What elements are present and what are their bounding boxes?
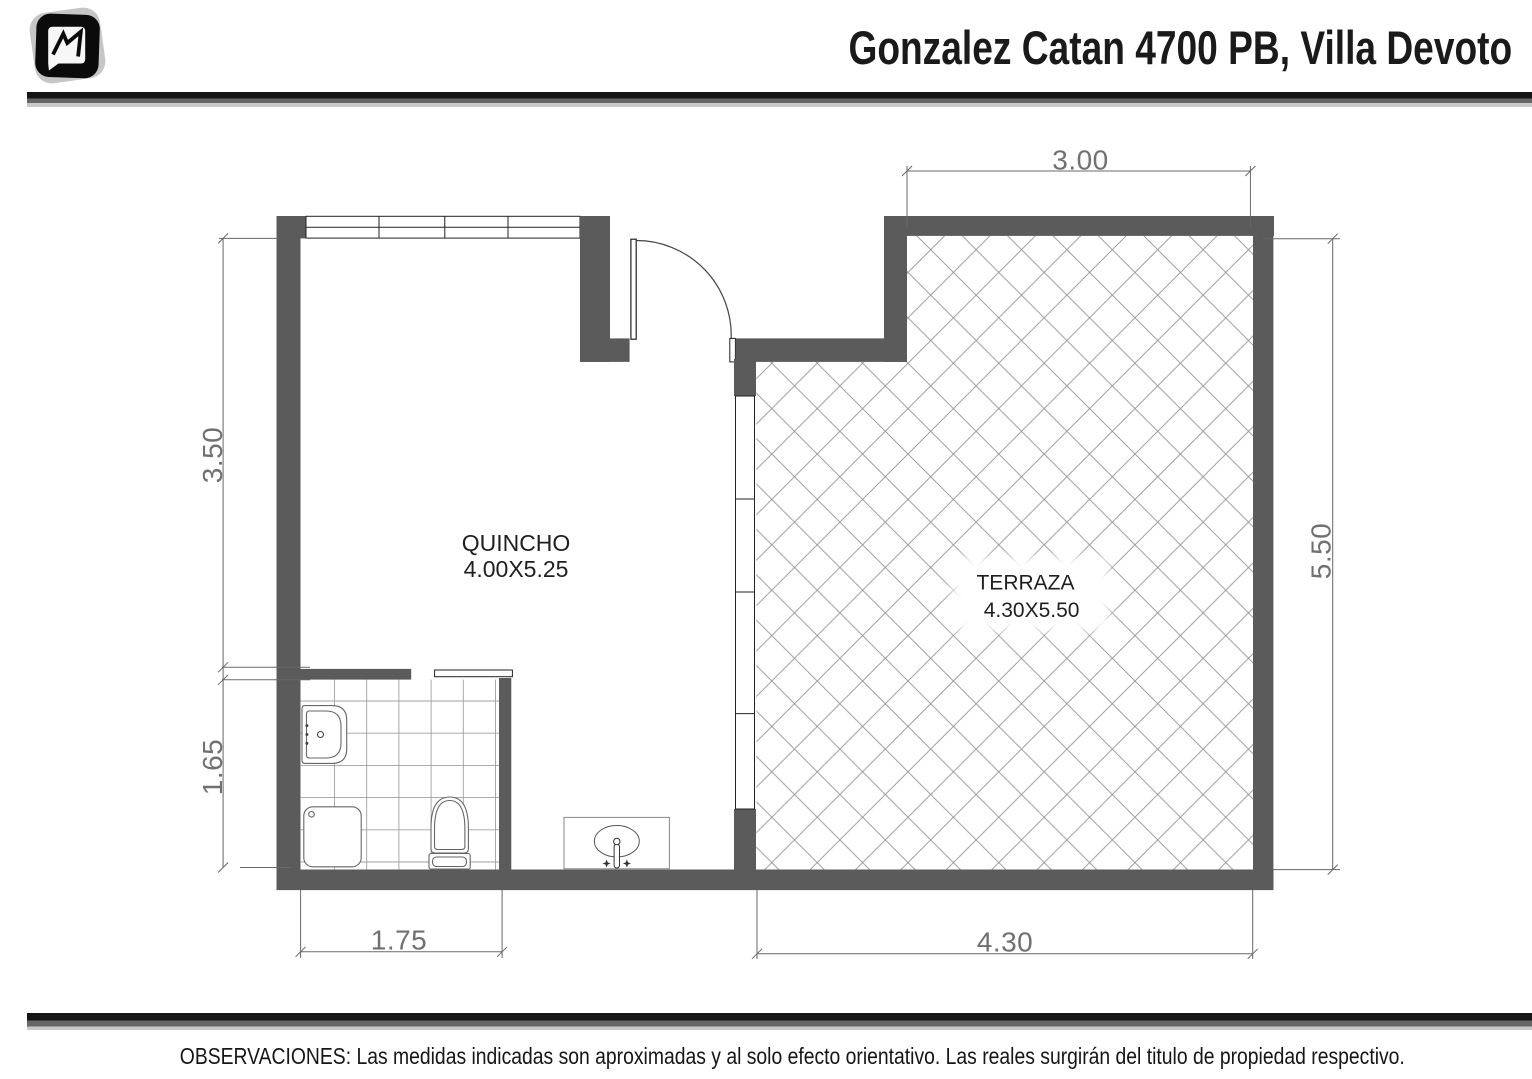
svg-text:4.30: 4.30 xyxy=(977,926,1034,957)
svg-text:1.75: 1.75 xyxy=(371,924,428,955)
svg-text:3.00: 3.00 xyxy=(1052,145,1109,176)
svg-text:1.65: 1.65 xyxy=(197,739,228,796)
svg-text:TERRAZA: TERRAZA xyxy=(976,572,1074,595)
svg-text:3.50: 3.50 xyxy=(197,427,228,484)
svg-text:4.00X5.25: 4.00X5.25 xyxy=(464,556,569,582)
svg-text:4.30X5.50: 4.30X5.50 xyxy=(984,599,1080,622)
svg-text:QUINCHO: QUINCHO xyxy=(462,530,571,556)
svg-text:5.50: 5.50 xyxy=(1306,523,1337,580)
